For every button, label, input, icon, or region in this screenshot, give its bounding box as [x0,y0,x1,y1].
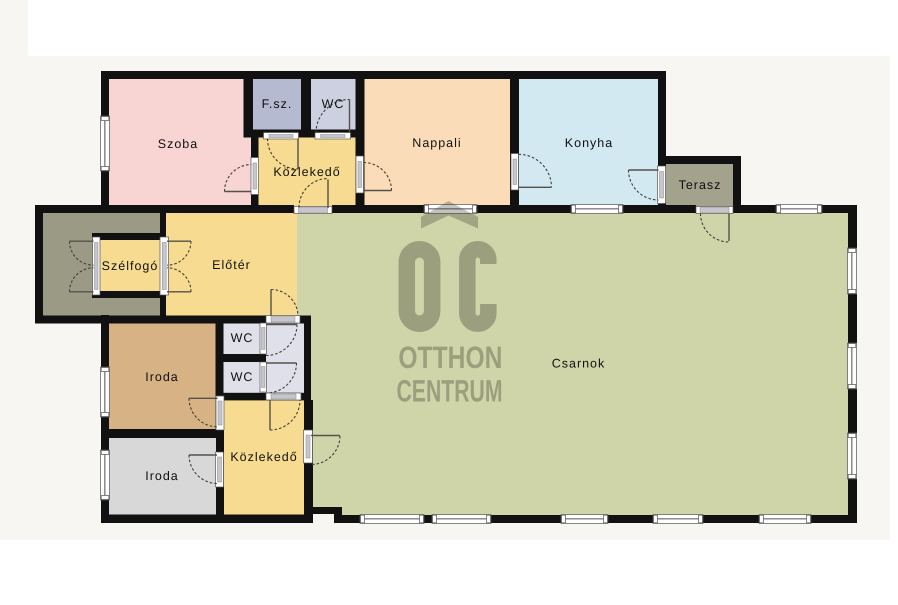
svg-text:F.sz.: F.sz. [262,97,293,111]
svg-text:Közlekedő: Közlekedő [273,165,340,179]
svg-text:Csarnok: Csarnok [552,357,606,371]
svg-text:Előtér: Előtér [212,258,251,272]
svg-text:WC: WC [231,331,254,345]
svg-text:Szélfogó: Szélfogó [102,259,159,273]
svg-text:WC: WC [231,370,254,384]
svg-text:Terasz: Terasz [679,178,722,192]
svg-text:Szoba: Szoba [158,137,198,151]
svg-text:WC: WC [322,97,345,111]
svg-text:Iroda: Iroda [145,370,179,384]
svg-text:Iroda: Iroda [145,469,179,483]
svg-text:Közlekedő: Közlekedő [230,450,297,464]
svg-text:Konyha: Konyha [565,136,613,150]
svg-text:OTTHON: OTTHON [398,340,502,375]
svg-text:Nappali: Nappali [412,136,461,150]
svg-text:CENTRUM: CENTRUM [397,373,503,408]
